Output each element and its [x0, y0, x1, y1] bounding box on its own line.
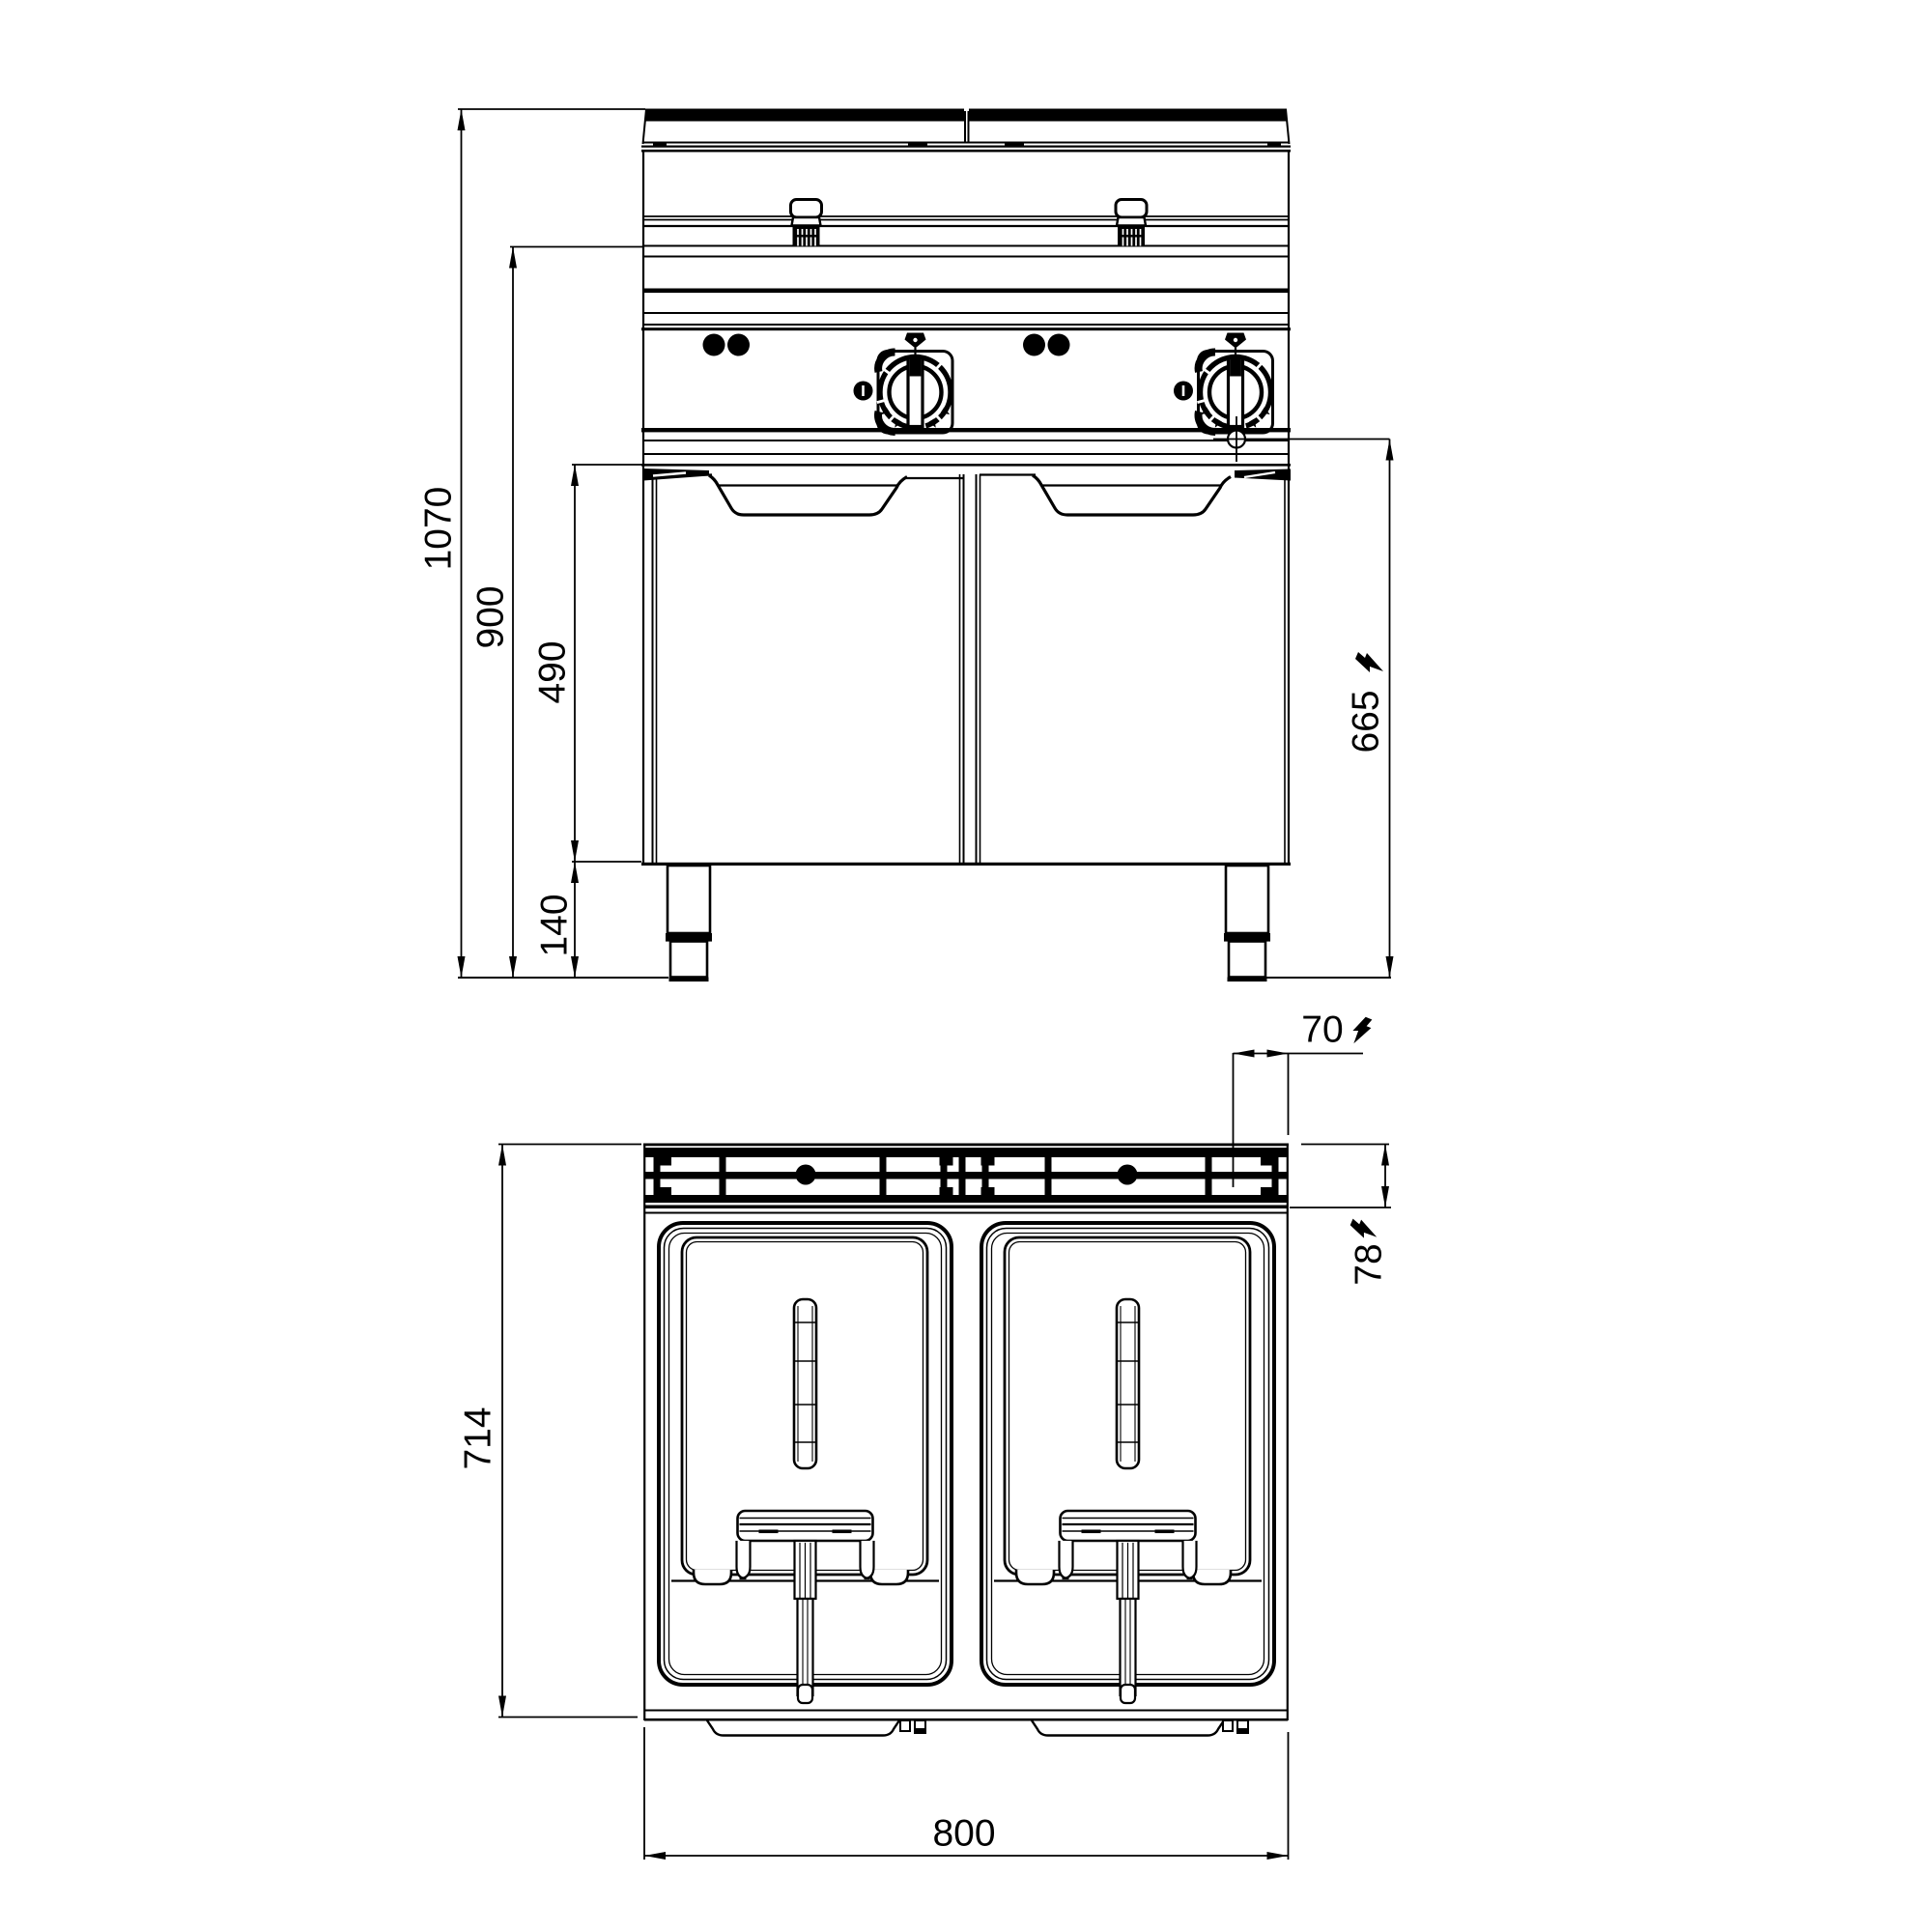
- svg-text:800: 800: [932, 1812, 995, 1854]
- svg-text:490: 490: [531, 640, 573, 703]
- svg-text:1070: 1070: [417, 487, 459, 571]
- svg-text:140: 140: [533, 894, 575, 956]
- svg-text:70: 70: [1301, 1009, 1343, 1050]
- svg-text:78: 78: [1348, 1243, 1389, 1285]
- svg-text:714: 714: [457, 1406, 498, 1469]
- svg-text:900: 900: [469, 585, 511, 648]
- svg-text:665: 665: [1345, 690, 1386, 753]
